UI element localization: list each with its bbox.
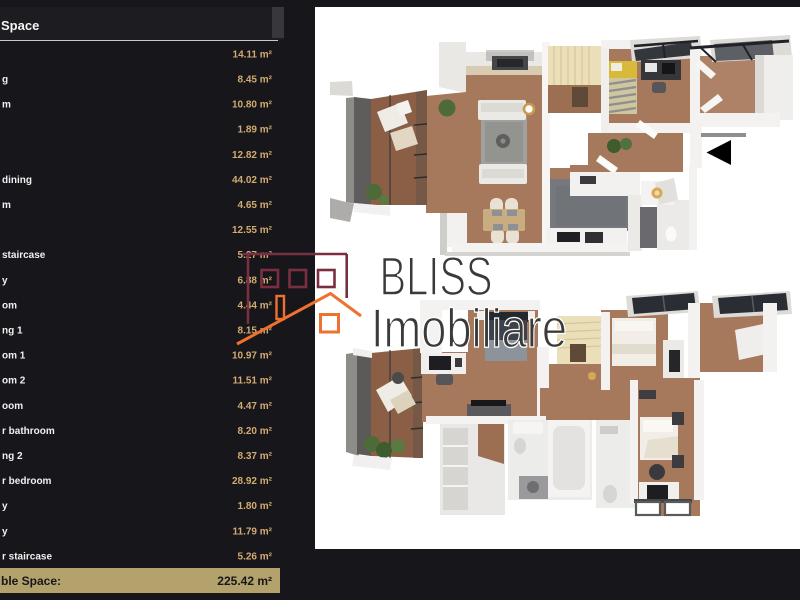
- svg-text:1.89 m²: 1.89 m²: [238, 125, 273, 136]
- svg-text:10.80 m²: 10.80 m²: [232, 100, 273, 111]
- svg-text:4.47 m²: 4.47 m²: [238, 401, 273, 412]
- svg-text:11.79 m²: 11.79 m²: [233, 526, 273, 537]
- svg-text:Imobiliare: Imobiliare: [371, 297, 567, 359]
- svg-text:r bathroom: r bathroom: [2, 426, 55, 437]
- svg-text:g: g: [2, 75, 8, 86]
- svg-text:225.42 m²: 225.42 m²: [217, 574, 272, 588]
- svg-text:5.26 m²: 5.26 m²: [238, 551, 273, 562]
- svg-text:oom: oom: [2, 401, 23, 412]
- svg-text:10.97 m²: 10.97 m²: [232, 351, 273, 362]
- svg-text:8.20 m²: 8.20 m²: [238, 426, 273, 437]
- svg-text:44.02 m²: 44.02 m²: [232, 175, 273, 186]
- svg-text:6.88 m²: 6.88 m²: [238, 275, 273, 286]
- svg-text:Space: Space: [1, 18, 39, 33]
- svg-text:m: m: [2, 200, 11, 211]
- svg-text:y: y: [2, 501, 8, 512]
- svg-text:dining: dining: [2, 175, 32, 186]
- svg-text:ng 2: ng 2: [2, 451, 23, 462]
- svg-text:ng 1: ng 1: [2, 326, 23, 337]
- svg-text:14.11 m²: 14.11 m²: [233, 49, 273, 60]
- svg-text:28.92 m²: 28.92 m²: [232, 476, 273, 487]
- svg-text:4.44 m²: 4.44 m²: [238, 300, 273, 311]
- svg-text:r bedroom: r bedroom: [2, 476, 52, 487]
- svg-text:8.45 m²: 8.45 m²: [238, 75, 273, 86]
- svg-text:om 2: om 2: [2, 376, 26, 387]
- svg-text:11.51 m²: 11.51 m²: [233, 376, 273, 387]
- svg-text:ble Space:: ble Space:: [1, 574, 61, 588]
- svg-text:r staircase: r staircase: [2, 551, 52, 562]
- svg-text:8.37 m²: 8.37 m²: [238, 451, 273, 462]
- svg-text:m: m: [2, 100, 11, 111]
- svg-text:12.55 m²: 12.55 m²: [232, 225, 273, 236]
- svg-text:y: y: [2, 275, 8, 286]
- svg-text:om 1: om 1: [2, 351, 26, 362]
- svg-text:1.80 m²: 1.80 m²: [238, 501, 273, 512]
- svg-text:12.82 m²: 12.82 m²: [232, 150, 273, 161]
- svg-text:5.27 m²: 5.27 m²: [238, 250, 273, 261]
- svg-text:om: om: [2, 300, 17, 311]
- svg-text:staircase: staircase: [2, 250, 46, 261]
- svg-text:4.65 m²: 4.65 m²: [238, 200, 273, 211]
- svg-text:y: y: [2, 526, 8, 537]
